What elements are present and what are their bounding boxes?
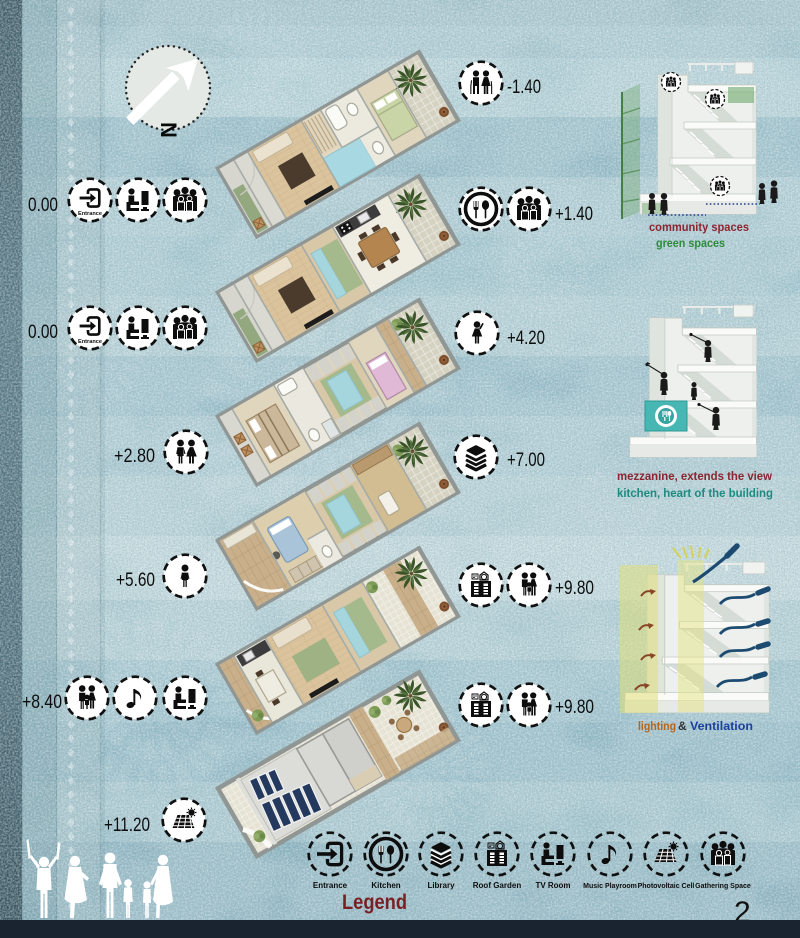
svg-text:mezzanine, extends the view: mezzanine, extends the view bbox=[617, 469, 773, 483]
svg-text:+11.20: +11.20 bbox=[104, 814, 150, 836]
svg-text:TV Room: TV Room bbox=[535, 881, 570, 890]
svg-text:+9.80: +9.80 bbox=[555, 696, 594, 718]
svg-text:+2.80: +2.80 bbox=[114, 445, 155, 467]
svg-text:Ventilation: Ventilation bbox=[690, 719, 753, 733]
svg-text:Entrance: Entrance bbox=[78, 339, 102, 345]
svg-text:Roof Garden: Roof Garden bbox=[473, 881, 522, 890]
svg-text:N: N bbox=[156, 122, 181, 138]
svg-text:+5.60: +5.60 bbox=[116, 569, 155, 591]
svg-text:community spaces: community spaces bbox=[649, 220, 749, 234]
svg-text:Photovoltaic Cell: Photovoltaic Cell bbox=[638, 883, 695, 890]
svg-text:0.00: 0.00 bbox=[28, 194, 58, 216]
svg-text:Kitchen: Kitchen bbox=[371, 881, 400, 890]
svg-text:+9.80: +9.80 bbox=[555, 577, 594, 599]
svg-text:Legend: Legend bbox=[342, 891, 407, 914]
svg-text:Music Playroom: Music Playroom bbox=[583, 883, 637, 890]
svg-text:+1.40: +1.40 bbox=[555, 203, 593, 225]
svg-text:Entrance: Entrance bbox=[313, 881, 348, 890]
svg-text:+8.40: +8.40 bbox=[22, 691, 62, 713]
svg-text:0.00: 0.00 bbox=[28, 321, 58, 343]
svg-text:Gathering Space: Gathering Space bbox=[695, 883, 751, 890]
svg-text:Library: Library bbox=[427, 881, 455, 890]
svg-text:&: & bbox=[678, 719, 687, 733]
svg-text:lighting: lighting bbox=[638, 719, 676, 733]
svg-text:+7.00: +7.00 bbox=[507, 449, 545, 471]
svg-text:-1.40: -1.40 bbox=[507, 76, 541, 98]
svg-text:kitchen, heart of the building: kitchen, heart of the building bbox=[617, 486, 773, 500]
svg-text:green spaces: green spaces bbox=[656, 236, 725, 250]
svg-text:Entrance: Entrance bbox=[78, 211, 102, 217]
svg-text:+4.20: +4.20 bbox=[507, 327, 545, 349]
